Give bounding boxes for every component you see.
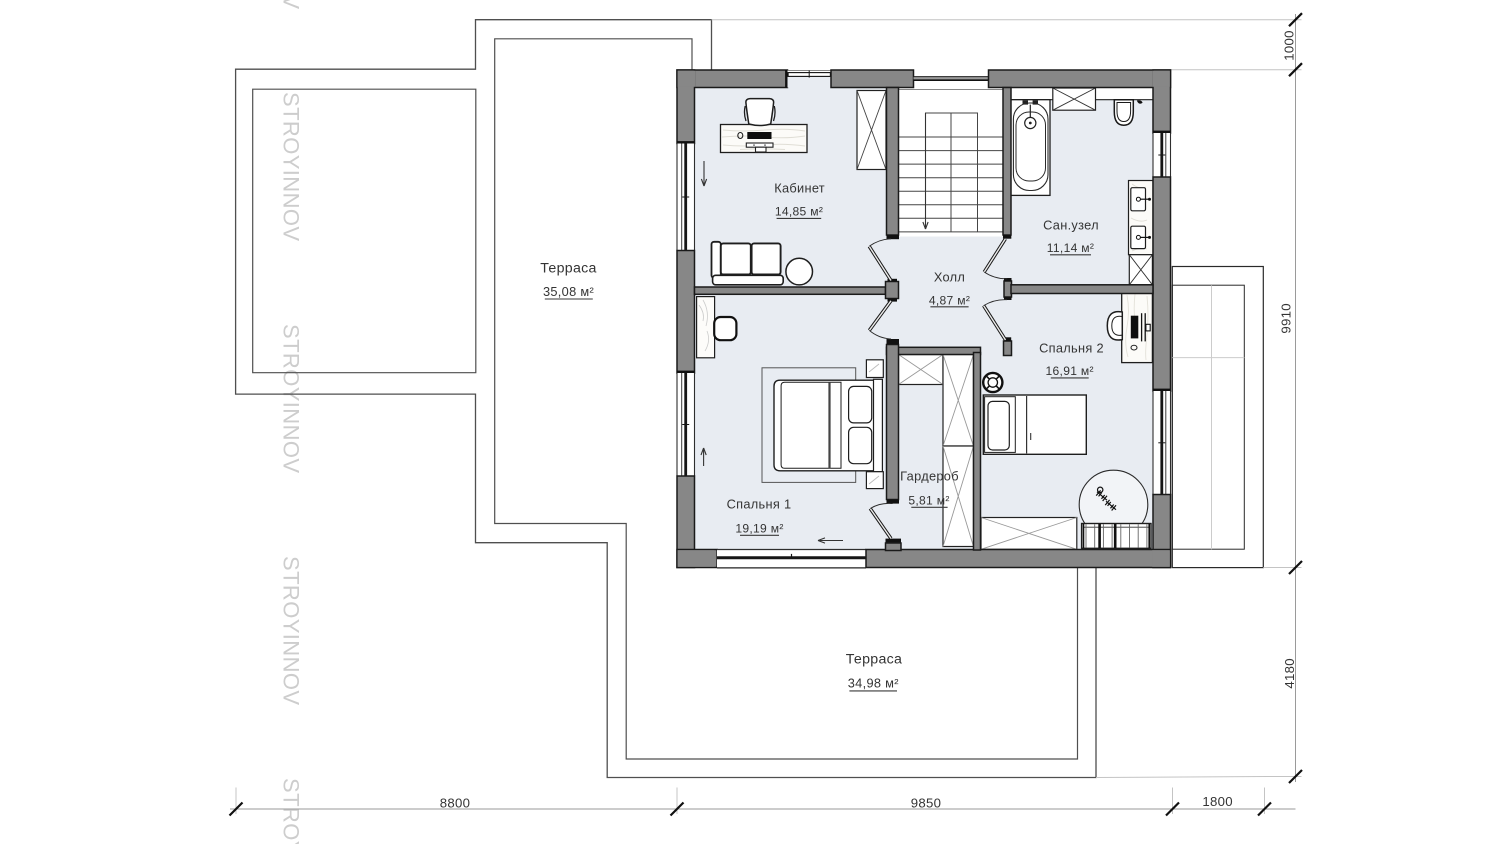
svg-text:STROYINNOV: STROYINNOV (279, 92, 304, 241)
svg-text:16,91 м²: 16,91 м² (1046, 364, 1094, 378)
svg-text:4180: 4180 (1282, 658, 1297, 689)
svg-text:35,08 м²: 35,08 м² (543, 284, 594, 299)
svg-text:9850: 9850 (911, 796, 942, 811)
svg-text:1800: 1800 (1202, 794, 1233, 809)
svg-text:Холл: Холл (934, 270, 965, 285)
svg-text:Спальня 1: Спальня 1 (727, 497, 792, 512)
svg-text:Кабинет: Кабинет (774, 181, 825, 196)
svg-text:5,81 м²: 5,81 м² (908, 494, 949, 508)
svg-text:34,98 м²: 34,98 м² (848, 675, 899, 690)
svg-text:Спальня 2: Спальня 2 (1039, 341, 1104, 356)
svg-text:Гардероб: Гардероб (900, 469, 959, 484)
svg-text:STROYINNOV: STROYINNOV (279, 778, 304, 844)
svg-text:STROYINNOV: STROYINNOV (279, 0, 304, 9)
svg-text:9910: 9910 (1279, 303, 1294, 334)
svg-text:STROYINNOV: STROYINNOV (279, 556, 304, 705)
svg-text:11,14 м²: 11,14 м² (1047, 241, 1094, 255)
svg-text:4,87 м²: 4,87 м² (929, 293, 970, 307)
svg-text:19,19 м²: 19,19 м² (735, 522, 783, 536)
svg-text:14,85 м²: 14,85 м² (775, 205, 823, 219)
svg-text:Терраса: Терраса (540, 261, 597, 277)
svg-text:Терраса: Терраса (846, 652, 903, 668)
svg-text:Сан.узел: Сан.узел (1043, 218, 1099, 233)
svg-text:STROYINNOV: STROYINNOV (279, 324, 304, 473)
svg-text:1000: 1000 (1281, 30, 1296, 61)
svg-text:8800: 8800 (440, 796, 471, 811)
